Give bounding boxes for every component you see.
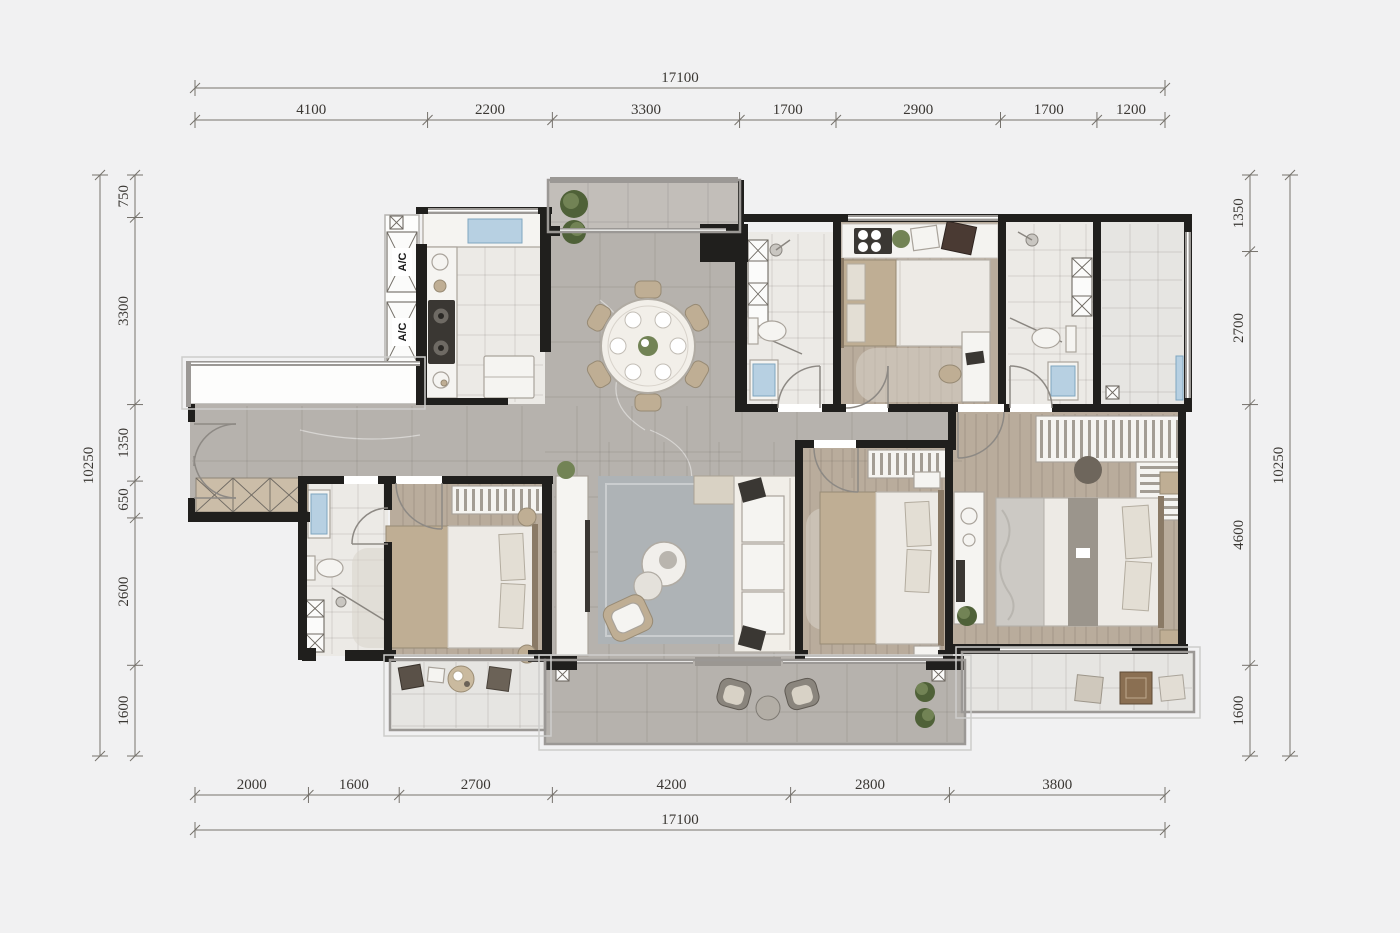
svg-text:2600: 2600 — [116, 577, 132, 607]
svg-text:750: 750 — [116, 185, 132, 208]
floor-cushion — [1159, 675, 1185, 701]
tv-icon — [585, 520, 590, 612]
wood-box-table — [1120, 672, 1152, 704]
kitchen-sink — [432, 254, 448, 270]
utility-strip-floor — [1100, 222, 1184, 408]
toilet — [317, 559, 343, 577]
svg-text:17100: 17100 — [661, 70, 699, 86]
nightstand — [518, 508, 536, 526]
bath3-window — [311, 494, 327, 534]
floor-plan-canvas: A/C A/C — [0, 0, 1400, 933]
svg-text:4600: 4600 — [1231, 520, 1247, 550]
main-balcony-floor — [545, 660, 965, 744]
desk-chair — [939, 365, 961, 383]
tv-icon — [956, 560, 965, 602]
plant-icon — [557, 461, 575, 479]
bed1 — [386, 524, 538, 650]
sofa — [734, 476, 796, 652]
right-balcony — [1075, 672, 1185, 704]
svg-text:4100: 4100 — [296, 102, 326, 118]
svg-text:2900: 2900 — [903, 102, 933, 118]
svg-text:2200: 2200 — [475, 102, 505, 118]
svg-text:1700: 1700 — [773, 102, 803, 118]
svg-text:1600: 1600 — [339, 777, 369, 793]
tv-console — [556, 476, 588, 656]
balcony-table — [756, 696, 780, 720]
toilet-tank — [748, 318, 758, 344]
floor-cushion — [487, 667, 512, 692]
svg-text:3300: 3300 — [631, 102, 661, 118]
svg-text:1200: 1200 — [1116, 102, 1146, 118]
svg-text:1600: 1600 — [116, 696, 132, 726]
svg-text:17100: 17100 — [661, 812, 699, 828]
svg-text:2700: 2700 — [461, 777, 491, 793]
svg-text:2700: 2700 — [1231, 313, 1247, 343]
svg-text:1350: 1350 — [1231, 198, 1247, 228]
kitchen-window — [468, 219, 522, 243]
entry-bay-window-sill — [188, 364, 420, 404]
laptop-icon — [965, 351, 984, 365]
decor-pillow — [941, 221, 976, 255]
svg-text:1700: 1700 — [1034, 102, 1064, 118]
svg-text:10250: 10250 — [81, 447, 97, 485]
desk — [962, 332, 990, 402]
svg-text:1600: 1600 — [1231, 696, 1247, 726]
ottoman — [1074, 456, 1102, 484]
master-bed — [996, 496, 1164, 628]
svg-text:3300: 3300 — [116, 296, 132, 326]
floor-cushion — [1075, 675, 1104, 704]
svg-text:2000: 2000 — [237, 777, 267, 793]
shower-head-icon — [336, 597, 346, 607]
entry — [196, 478, 308, 512]
floor-cushion — [398, 664, 423, 689]
balcony-slider-panel — [695, 657, 781, 666]
plant-icon — [892, 230, 910, 248]
left-balcony — [398, 664, 511, 692]
ac-units: A/C A/C — [387, 216, 417, 362]
bed3 — [820, 490, 944, 646]
toilet — [1032, 328, 1060, 348]
ac-label-2: A/C — [397, 322, 409, 341]
svg-text:3800: 3800 — [1042, 777, 1072, 793]
ac-label-1: A/C — [397, 252, 409, 271]
svg-text:1350: 1350 — [116, 428, 132, 458]
toilet-tank — [306, 556, 315, 580]
svg-text:4200: 4200 — [656, 777, 686, 793]
nightstand — [914, 472, 940, 488]
svg-text:10250: 10250 — [1271, 447, 1287, 485]
svg-text:2800: 2800 — [855, 777, 885, 793]
toilet-tank — [1066, 326, 1076, 352]
strip-window — [1176, 356, 1183, 400]
svg-text:650: 650 — [116, 488, 132, 511]
toilet — [758, 321, 786, 341]
room-bed2 — [839, 221, 998, 402]
